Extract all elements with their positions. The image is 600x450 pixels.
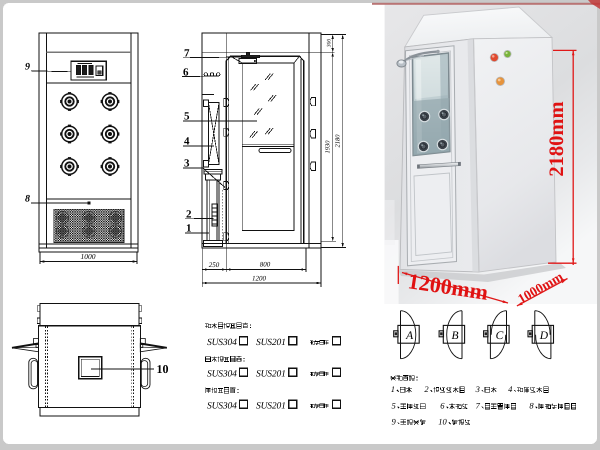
svg-text:2180mm: 2180mm [546, 101, 568, 176]
svg-text:4: 4 [508, 384, 513, 394]
svg-text:C: C [496, 330, 504, 342]
svg-text:6: 6 [440, 401, 445, 411]
svg-text:1200: 1200 [252, 275, 267, 283]
svg-text:10: 10 [438, 417, 447, 427]
svg-text:A: A [405, 330, 414, 342]
svg-text:8: 8 [25, 194, 30, 205]
svg-text:B: B [451, 330, 458, 342]
svg-text:8: 8 [529, 401, 534, 411]
svg-text:9: 9 [25, 62, 30, 73]
svg-text:1000: 1000 [81, 252, 96, 261]
svg-text:SUS201: SUS201 [256, 370, 286, 380]
svg-text:SUS304: SUS304 [207, 338, 237, 348]
svg-text:300: 300 [327, 39, 333, 49]
svg-text:7: 7 [476, 401, 481, 411]
svg-text:D: D [539, 330, 549, 342]
svg-text:SUS304: SUS304 [207, 402, 237, 412]
svg-text:5: 5 [392, 401, 396, 411]
svg-text:2: 2 [424, 384, 429, 394]
svg-text:SUS304: SUS304 [207, 370, 237, 380]
svg-text:2180: 2180 [335, 134, 342, 148]
svg-text:1930: 1930 [325, 140, 332, 154]
svg-text:10: 10 [157, 362, 169, 376]
svg-text:SUS201: SUS201 [256, 402, 286, 412]
svg-text:800: 800 [260, 261, 271, 269]
svg-text:3: 3 [475, 384, 480, 394]
svg-text:1: 1 [391, 384, 395, 394]
svg-text:SUS201: SUS201 [256, 338, 286, 348]
svg-text:250: 250 [209, 261, 220, 269]
